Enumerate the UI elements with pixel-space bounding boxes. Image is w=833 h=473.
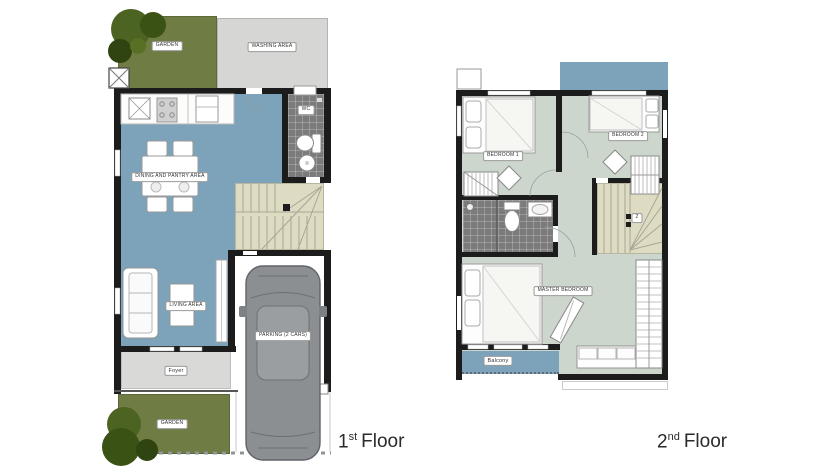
master-bedroom-label: MASTER BEDROOM (534, 286, 593, 296)
window-icon (457, 69, 481, 89)
first-floor-word: Floor (361, 431, 404, 452)
garden-top-area (118, 16, 217, 92)
second-floor-number: 2 (657, 431, 668, 452)
gate-post (314, 384, 328, 394)
first-floor-title: 1stFloor (338, 431, 404, 453)
roof-deck (560, 62, 668, 95)
wc-label: WC (298, 105, 315, 115)
washing-area (217, 18, 328, 90)
washing-area-label: WASHING AREA (248, 42, 297, 52)
first-floor-number: 1 (338, 431, 349, 452)
parking-label: PARKING (2 CARS) (255, 331, 311, 341)
stairs-second-floor (597, 183, 663, 254)
foyer-label: Foyer (164, 366, 187, 376)
bathroom-second-floor (463, 200, 554, 252)
second-floor-ordinal: nd (668, 431, 680, 443)
stair-floor-marker: 2 (632, 213, 643, 223)
roof-eave (562, 381, 668, 390)
living-area-floor (121, 252, 228, 346)
bedroom2-label: BEDROOM 2 (608, 131, 648, 141)
dining-area-label: DINING AND PANTRY AREA (131, 172, 208, 182)
bedroom1-label: BEDROOM 1 (483, 151, 523, 161)
garden-top-label: GARDEN (152, 41, 183, 51)
stairs-first-floor (235, 183, 324, 250)
balcony-label: Balcony (484, 356, 513, 366)
car-top-view (239, 266, 327, 460)
living-area-label: LIVING AREA (165, 301, 206, 311)
floorplan-canvas: GARDEN WASHING AREA DINING AND PANTRY AR… (0, 0, 833, 473)
second-floor-word: Floor (684, 431, 727, 452)
first-floor-ordinal: st (349, 431, 358, 443)
second-floor-title: 2ndFloor (657, 431, 727, 453)
garden-bottom-label: GARDEN (157, 419, 188, 429)
